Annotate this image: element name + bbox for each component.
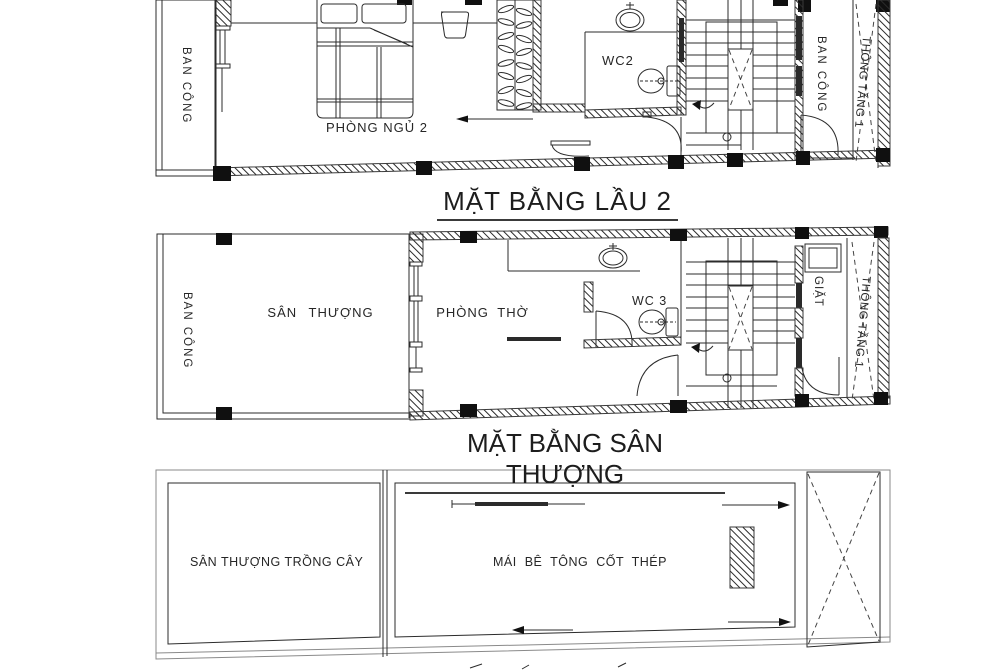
column-marker [460,404,477,417]
arrow-right-icon [728,618,791,626]
label-balcony-left-terrace: BAN CÔNG [181,292,193,369]
label-laundry: GIẶT [812,276,824,307]
window-glass [796,16,802,60]
door-arc [801,115,838,157]
left-wall-window [215,0,231,168]
sink-counter [508,240,640,271]
column-marker [795,394,809,407]
column-marker [216,407,232,420]
rebar-symbol [452,500,585,508]
sink-icon [599,243,627,268]
label-worship-room: PHÒNG THỜ [430,305,535,320]
stair-void-x [728,49,753,110]
arrow-right-icon [722,501,790,509]
column-marker [465,0,482,5]
label-concrete-roof: MÁI BÊ TÔNG CỐT THÉP [480,555,680,569]
column-marker [216,233,232,245]
hatched-wall [410,396,890,420]
toilet-icon [639,308,678,336]
plan-terrace-title: MẶT BẰNG SÂN THƯỢNG [405,428,725,494]
terrace-outline [157,234,410,419]
column-marker [874,226,888,238]
hatched-wall [533,0,541,110]
floorplan-sheet: BAN CÔNG PHÒNG NGỦ 2 WC2 BAN CÔNG THÔNG … [0,0,1000,670]
cutoff-title-marks [470,663,626,669]
label-wc2: WC2 [602,53,634,68]
plan-roof-linework [156,470,890,669]
column-marker [727,153,743,167]
sink-icon [616,2,644,31]
column-marker [796,151,810,165]
label-bedroom: PHÒNG NGỦ 2 [307,120,447,135]
column-marker [416,161,432,175]
label-planted-terrace: SÂN THƯỢNG TRỒNG CÂY [190,555,340,569]
hatched-wall [410,227,888,240]
hatched-wall [585,107,681,118]
stairs [686,0,795,150]
hatched-wall [215,150,890,176]
chimney-hatched [730,527,754,588]
hatched-wall [584,282,593,312]
label-balcony-right-f2: BAN CÔNG [815,36,827,113]
label-terrace: SÂN THƯỢNG [258,305,383,320]
column-marker [773,0,788,6]
plan-terrace-linework [157,226,890,420]
wc2-room [585,2,681,155]
arrow-left-icon [456,116,533,123]
window-glass [679,18,684,62]
hatched-wall [878,238,889,398]
wardrobe-icon [497,0,533,111]
pillow [321,4,357,23]
roof-x-panel [807,472,880,647]
plan-floor2-linework [156,0,890,181]
column-marker [213,166,231,181]
hatched-wall [878,0,890,166]
column-marker [460,231,477,243]
stool-icon [441,12,469,38]
stairs [686,238,795,408]
plan-floor2-title: MẶT BẰNG LẦU 2 [420,186,695,221]
hatched-wall [533,104,585,112]
pillow [362,4,406,23]
column-marker [670,400,687,413]
column-marker [876,148,890,162]
door-arc [637,355,678,396]
door-arc [643,112,681,155]
column-marker [574,157,590,171]
toilet-icon [638,66,680,96]
door-arc [801,357,839,395]
bed-icon [317,0,413,118]
column-marker [795,227,809,239]
window-glass [796,66,802,96]
hatched-wall [795,246,803,396]
hatched-wall [584,337,681,348]
laundry-room [801,238,847,398]
drawing-linework [0,0,1000,670]
label-wc3: WC 3 [632,294,667,308]
threshold [507,337,561,341]
stair-void-x [728,286,753,350]
column-marker [670,229,687,241]
terrace-wall-window [409,234,423,418]
label-balcony-left-f2: BAN CÔNG [180,47,192,124]
column-marker [668,155,684,169]
column-marker [874,392,888,405]
door-arc [551,141,590,156]
